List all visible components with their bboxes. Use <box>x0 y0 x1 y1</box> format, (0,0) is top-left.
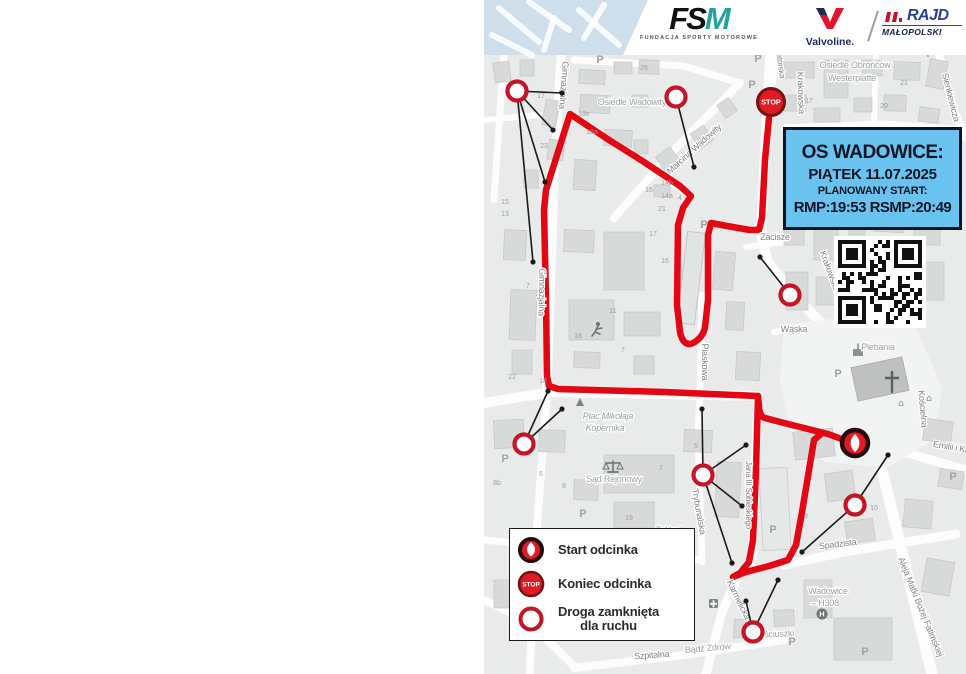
start-marker <box>842 430 868 456</box>
fsm-logo-text: FSM <box>624 4 774 34</box>
fsm-logo: FSM FUNDACJA SPORTY MOTOROWE <box>624 4 774 41</box>
svg-text:Plac Mikołaja: Plac Mikołaja <box>583 411 634 421</box>
stage-title: OS WADOWICE: <box>786 142 959 164</box>
svg-text:8: 8 <box>562 483 566 490</box>
qr-code <box>834 236 926 328</box>
svg-text:Wadowice: Wadowice <box>808 586 848 596</box>
svg-text:11: 11 <box>609 308 616 315</box>
rajd-wordmark: RAJD <box>907 8 949 24</box>
closed-road-marker <box>508 82 527 101</box>
svg-text:17: 17 <box>649 231 657 238</box>
svg-text:15: 15 <box>501 199 509 206</box>
valvoline-wordmark: Valvoline. <box>798 36 862 48</box>
svg-text:7: 7 <box>621 347 625 354</box>
svg-text:P: P <box>596 54 603 66</box>
helipad-icon: H <box>817 609 828 620</box>
legend-label-stop: Koniec odcinka <box>558 577 651 591</box>
svg-text:P: P <box>579 508 586 520</box>
closed-road-marker <box>744 623 763 642</box>
closed-road-marker <box>694 466 713 485</box>
svg-text:P: P <box>834 368 841 380</box>
svg-text:Kopernika: Kopernika <box>586 423 625 433</box>
logo-divider <box>867 11 878 42</box>
svg-text:18: 18 <box>574 333 582 340</box>
svg-text:18: 18 <box>539 378 547 385</box>
svg-text:14a: 14a <box>661 193 673 200</box>
svg-text:14b: 14b <box>661 180 673 187</box>
svg-text:19: 19 <box>625 515 633 522</box>
closed-road-marker <box>515 435 534 454</box>
svg-text:Westerplatte: Westerplatte <box>828 73 876 83</box>
svg-text:Osiedle Wadowity: Osiedle Wadowity <box>598 97 667 107</box>
svg-text:P: P <box>501 453 508 465</box>
svg-text:8b: 8b <box>493 480 501 487</box>
svg-text:Zacisze: Zacisze <box>760 232 790 242</box>
svg-text:STOP: STOP <box>522 582 540 589</box>
svg-text:P: P <box>748 79 755 91</box>
svg-text:18e: 18e <box>578 111 590 118</box>
stage-date: PIĄTEK 11.07.2025 <box>786 166 959 183</box>
svg-text:6: 6 <box>539 471 543 478</box>
route-map-poster: ⌂⌂PPPPPPPPPPPPGimnazjalnaGimnazjalnaMarc… <box>0 0 966 674</box>
svg-text:– H308: – H308 <box>811 598 839 608</box>
valvoline-logo: Valvoline. <box>798 6 862 48</box>
svg-text:Krakowska: Krakowska <box>795 72 806 115</box>
header-logos: FSM FUNDACJA SPORTY MOTOROWE Valvoline. <box>484 0 966 55</box>
closed-road-marker <box>667 88 686 107</box>
svg-text:Sąd Rejonowy: Sąd Rejonowy <box>586 474 642 484</box>
svg-text:13: 13 <box>501 211 509 218</box>
svg-text:22: 22 <box>508 374 516 381</box>
rajd-bars-icon <box>882 8 904 24</box>
legend-label-start: Start odcinka <box>558 543 638 557</box>
stop-marker-icon: STOP <box>516 569 546 599</box>
svg-text:H: H <box>819 610 824 619</box>
svg-text:Osiedle Obrońców: Osiedle Obrońców <box>820 60 892 70</box>
svg-text:20: 20 <box>880 103 888 110</box>
legend-label-closed-road: Droga zamknięta dla ruchu <box>558 605 659 633</box>
planned-start-label: PLANOWANY START: <box>786 185 959 197</box>
svg-text:Wąska: Wąska <box>781 324 808 334</box>
svg-text:10: 10 <box>870 505 878 512</box>
svg-text:⌂: ⌂ <box>898 399 904 409</box>
svg-text:26: 26 <box>640 65 648 72</box>
svg-text:P: P <box>769 524 776 536</box>
svg-text:21: 21 <box>658 206 666 213</box>
svg-text:Piaskowa: Piaskowa <box>700 344 710 381</box>
svg-text:3: 3 <box>804 513 808 520</box>
svg-text:Jana III Sobieskiego: Jana III Sobieskiego <box>744 461 753 530</box>
closed-road-marker-icon <box>516 604 546 634</box>
closed-road-marker <box>846 496 865 515</box>
svg-text:STOP: STOP <box>761 98 781 107</box>
svg-text:Plebania: Plebania <box>861 342 895 352</box>
valvoline-v-icon <box>815 6 845 30</box>
svg-text:Gimnazjalna: Gimnazjalna <box>537 268 548 316</box>
svg-text:17: 17 <box>537 93 545 100</box>
svg-text:7: 7 <box>526 283 530 290</box>
stage-info-box: OS WADOWICE: PIĄTEK 11.07.2025 PLANOWANY… <box>783 127 962 230</box>
svg-text:7: 7 <box>659 465 663 472</box>
svg-text:21: 21 <box>900 80 908 87</box>
svg-text:16: 16 <box>661 258 669 265</box>
map-legend: Start odcinka STOP Koniec odcinka Droga … <box>509 528 695 641</box>
legend-item-start: Start odcinka <box>516 535 688 565</box>
start-times: RMP:19:53 RSMP:20:49 <box>786 199 959 216</box>
closed-road-marker <box>781 286 800 305</box>
start-marker-icon <box>516 535 546 565</box>
svg-text:5: 5 <box>694 443 698 450</box>
svg-text:P: P <box>861 646 868 658</box>
rajd-malopolski-logo: RAJD MAŁOPOLSKI <box>882 8 962 37</box>
stop-marker: STOP <box>758 89 785 116</box>
svg-text:4: 4 <box>678 195 682 202</box>
map-panel: ⌂⌂PPPPPPPPPPPPGimnazjalnaGimnazjalnaMarc… <box>484 0 966 674</box>
svg-text:23: 23 <box>540 143 548 150</box>
legend-item-closed-road: Droga zamknięta dla ruchu <box>516 604 688 634</box>
legend-item-stop: STOP Koniec odcinka <box>516 569 688 599</box>
malopolski-wordmark: MAŁOPOLSKI <box>882 25 962 37</box>
fsm-logo-subtitle: FUNDACJA SPORTY MOTOROWE <box>624 35 774 41</box>
svg-text:17: 17 <box>805 98 813 105</box>
svg-text:18a: 18a <box>586 129 598 136</box>
svg-text:P: P <box>949 471 956 483</box>
svg-text:16: 16 <box>645 187 653 194</box>
